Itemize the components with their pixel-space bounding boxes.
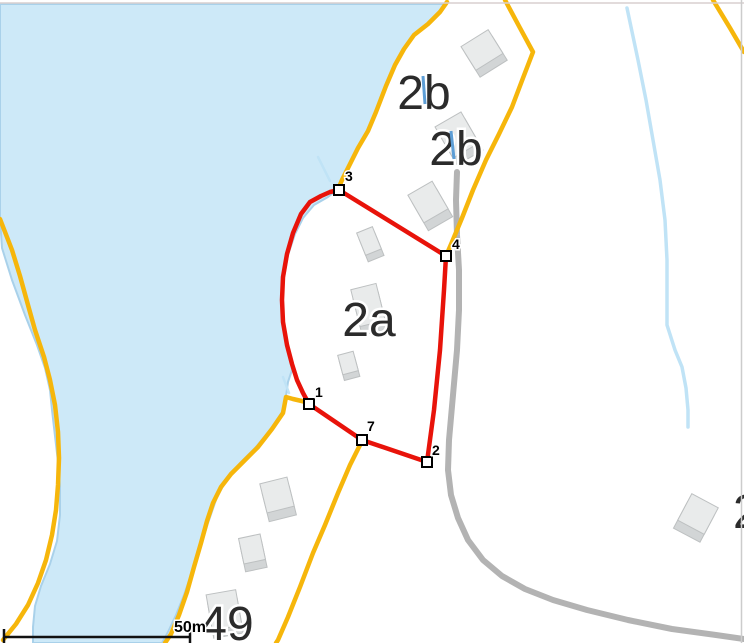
yellow-road-topright-corner bbox=[713, 0, 744, 52]
vertex-number: 1 bbox=[315, 384, 323, 400]
vertex-number: 4 bbox=[452, 236, 460, 252]
building bbox=[357, 227, 384, 262]
vertex-marker-4[interactable] bbox=[441, 251, 451, 261]
zone-label: 2a bbox=[342, 294, 396, 347]
building-top bbox=[239, 534, 266, 564]
zone-label: 49 bbox=[200, 598, 253, 643]
zone-label: 2 bbox=[733, 486, 744, 539]
building-top bbox=[338, 351, 359, 374]
building bbox=[338, 351, 360, 380]
gray-road bbox=[448, 172, 744, 639]
building-top bbox=[260, 477, 294, 513]
stream-right bbox=[627, 8, 688, 427]
vertex-marker-7[interactable] bbox=[357, 435, 367, 445]
building bbox=[239, 534, 268, 572]
scale-bar-label: 50m bbox=[174, 619, 206, 636]
building bbox=[260, 477, 297, 522]
map-canvas[interactable]: 2b2b2a492 12347 50m bbox=[0, 0, 744, 643]
building bbox=[408, 181, 453, 231]
vertex-marker-3[interactable] bbox=[334, 185, 344, 195]
vertex-number: 7 bbox=[367, 418, 375, 434]
yellow-road-from-vertex7 bbox=[276, 441, 362, 643]
building bbox=[673, 494, 718, 543]
label-stream-tick bbox=[423, 76, 425, 104]
vertex-marker-1[interactable] bbox=[304, 399, 314, 409]
vertex-number: 2 bbox=[432, 442, 440, 458]
vertex-number: 3 bbox=[345, 168, 353, 184]
zone-label: 2b bbox=[429, 123, 482, 176]
building bbox=[461, 30, 507, 77]
vertex-marker-2[interactable] bbox=[422, 457, 432, 467]
